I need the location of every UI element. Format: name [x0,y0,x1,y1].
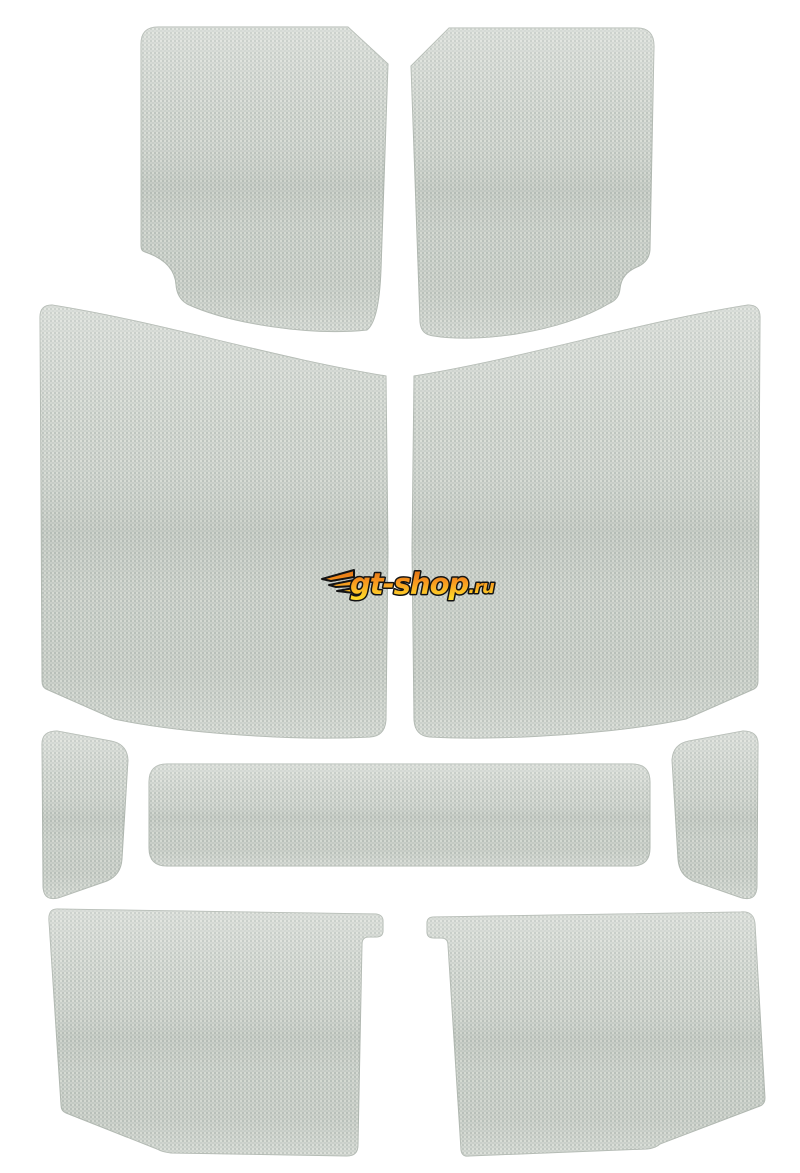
piece-shading [427,912,765,1156]
watermark-suffix: .ru [468,577,495,598]
piece-rear-right-panel [427,912,765,1156]
piece-right-side-large-panel [412,305,760,738]
watermark-main: gt-shop [350,567,468,601]
piece-center-header-bar [149,764,650,866]
piece-shading [42,731,128,899]
piece-shading [412,305,760,738]
piece-right-small-side-panel [672,731,758,899]
piece-front-left-door-panel [141,27,388,332]
headliner-kit-image: gt-shop.ru [0,0,800,1173]
piece-shading [411,28,654,338]
piece-front-right-door-panel [411,28,654,338]
piece-left-side-large-panel [40,305,388,738]
piece-shading [141,27,388,332]
piece-shading [672,731,758,899]
piece-rear-left-panel [49,909,383,1156]
piece-left-small-side-panel [42,731,128,899]
piece-shading [40,305,388,738]
piece-shading [49,909,383,1156]
piece-shading [149,764,650,866]
product-photo: gt-shop.ru [0,0,800,1173]
